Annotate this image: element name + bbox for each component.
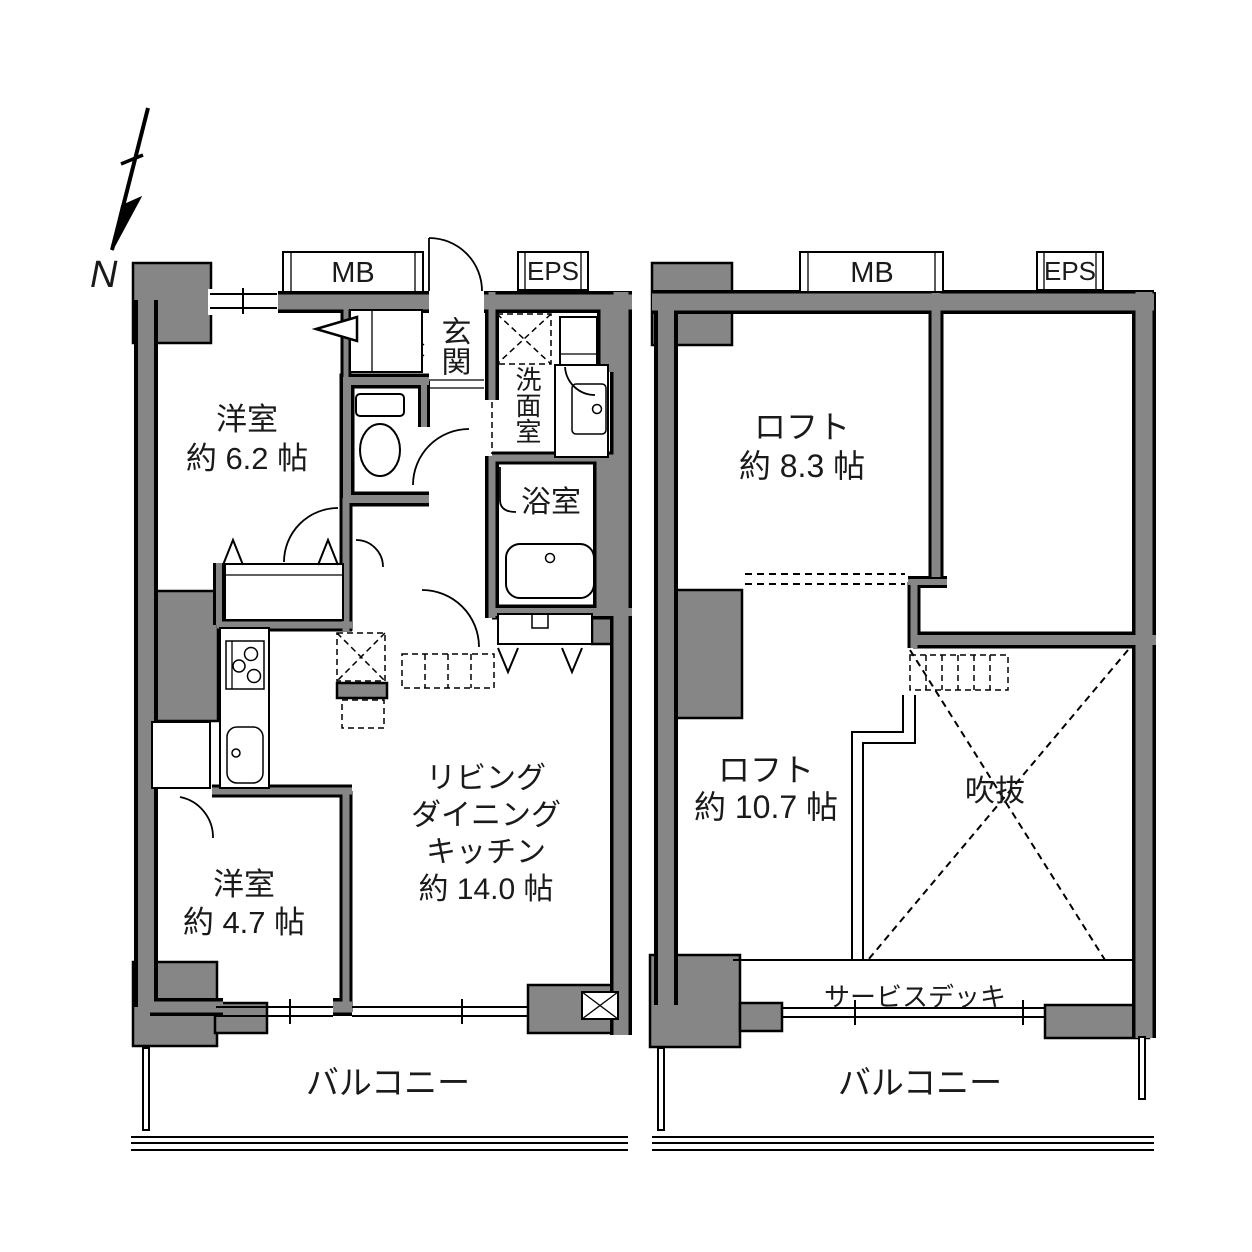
balcony-divider xyxy=(1139,1037,1145,1099)
room-label-washroom: 洗面室 xyxy=(512,366,542,444)
bath-door-curve xyxy=(500,467,516,512)
folding-door-mark xyxy=(318,540,338,565)
wall-stub xyxy=(337,683,387,698)
folding-door-mark xyxy=(562,648,582,672)
room-size-loft-a: 約 8.3 帖 xyxy=(739,448,865,484)
room-size-loft-b: 約 10.7 帖 xyxy=(694,789,838,825)
void-handrail xyxy=(863,695,915,960)
loft-opening-dashed xyxy=(745,574,905,584)
ground-line xyxy=(652,1137,1154,1143)
eps-label-f2: EPS xyxy=(1044,256,1096,286)
room-size-ldk: 約 14.0 帖 xyxy=(418,873,553,906)
balcony-label-f2: バルコニー xyxy=(838,1064,1002,1101)
folding-door-mark xyxy=(223,540,243,565)
kitchen-counter xyxy=(220,628,269,788)
floorplan-canvas: N xyxy=(0,0,1252,1252)
room-label-bathroom: 浴室 xyxy=(521,486,581,519)
loft-ladder-icon-f1 xyxy=(402,654,494,688)
shaft-box-icon xyxy=(582,992,618,1019)
room-label-bedroom-b: 洋室 xyxy=(213,867,275,902)
entrance-step-lines xyxy=(429,380,484,388)
hall-door-arc xyxy=(356,540,383,567)
vent-triangle-mark xyxy=(316,317,357,341)
ground-line xyxy=(131,1137,628,1143)
room-label-void: 吹抜 xyxy=(965,775,1025,808)
mb-box-f1: MB xyxy=(283,252,423,292)
floorplan-svg: N xyxy=(0,0,1252,1252)
room-label-entrance: 玄関 xyxy=(437,316,471,376)
room-label-ldk-1: リビング xyxy=(426,762,546,795)
window xyxy=(208,288,278,315)
toilet-icon xyxy=(356,394,404,476)
washroom-cabinet xyxy=(560,317,597,365)
entrance-door-arc xyxy=(429,238,482,291)
ldk-door-arc xyxy=(422,590,479,647)
balcony-divider xyxy=(143,1048,149,1130)
room-size-bedroom-a: 約 6.2 帖 xyxy=(186,441,308,476)
pillar xyxy=(740,1003,782,1031)
north-arrowhead-icon xyxy=(112,198,140,250)
eps-box-f1: EPS xyxy=(518,252,588,290)
floor1-plan: MB EPS xyxy=(131,238,632,1150)
mb-label-f1: MB xyxy=(331,257,375,289)
balcony-label-f1: バルコニー xyxy=(306,1064,470,1101)
service-deck-label: サービスデッキ xyxy=(824,982,1006,1012)
refrigerator-space-icon xyxy=(337,633,385,728)
room-label-ldk-2: ダイニング xyxy=(411,799,561,832)
room-size-bedroom-b: 約 4.7 帖 xyxy=(183,905,305,940)
shoe-cabinet xyxy=(350,310,422,372)
bathtub-icon xyxy=(506,544,594,598)
eps-label-f1: EPS xyxy=(527,256,579,286)
bedroom-a-door-arc xyxy=(284,508,338,562)
balcony-divider xyxy=(658,1048,664,1130)
closet-bedroom-b xyxy=(152,722,210,788)
room-label-loft-b: ロフト xyxy=(718,752,814,788)
closet-bedroom-a xyxy=(225,564,343,620)
room-label-ldk-3: キッチン xyxy=(426,836,546,869)
mb-label-f2: MB xyxy=(850,257,894,289)
toilet-door-arc xyxy=(413,429,469,485)
washer-pan-icon xyxy=(497,314,551,364)
compass-north-label: N xyxy=(90,254,118,296)
void-handrail xyxy=(852,695,903,960)
eps-box-f2: EPS xyxy=(1037,252,1103,290)
room-label-bedroom-a: 洋室 xyxy=(216,402,278,437)
bedroom-b-door-arc xyxy=(180,797,213,838)
floor2-plan: MB EPS ロフト 約 8.3 xyxy=(650,252,1156,1150)
vanity-sink-icon xyxy=(555,365,608,457)
mb-box-f2: MB xyxy=(800,252,943,292)
linen-closet xyxy=(498,614,592,644)
folding-door-mark xyxy=(498,648,518,672)
wall-chunk xyxy=(668,590,742,718)
room-label-loft-a: ロフト xyxy=(754,409,850,445)
